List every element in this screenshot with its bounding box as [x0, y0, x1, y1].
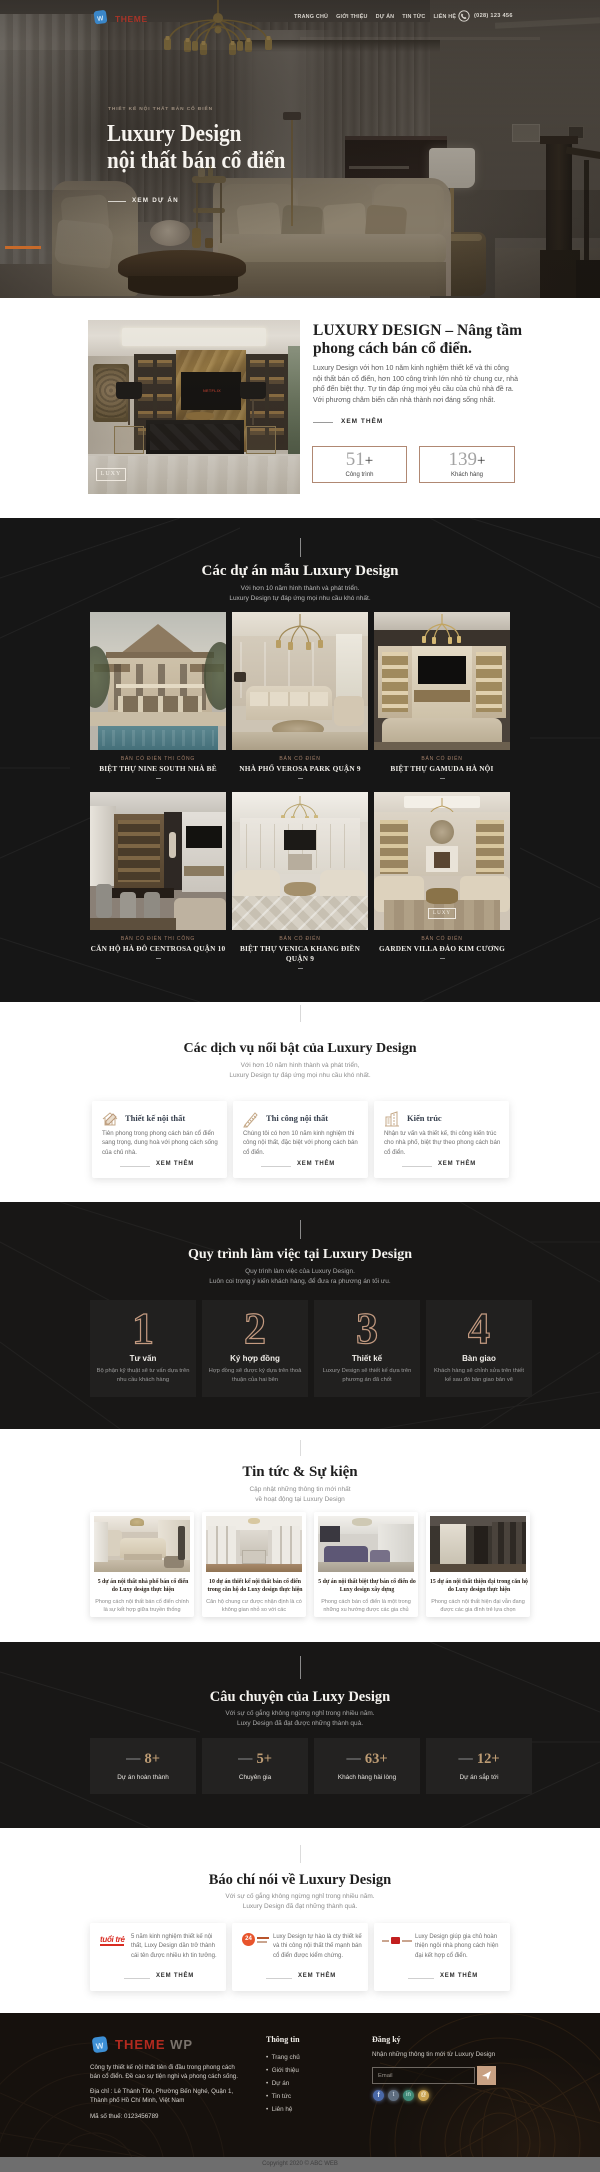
- svg-text:W: W: [95, 2041, 104, 2051]
